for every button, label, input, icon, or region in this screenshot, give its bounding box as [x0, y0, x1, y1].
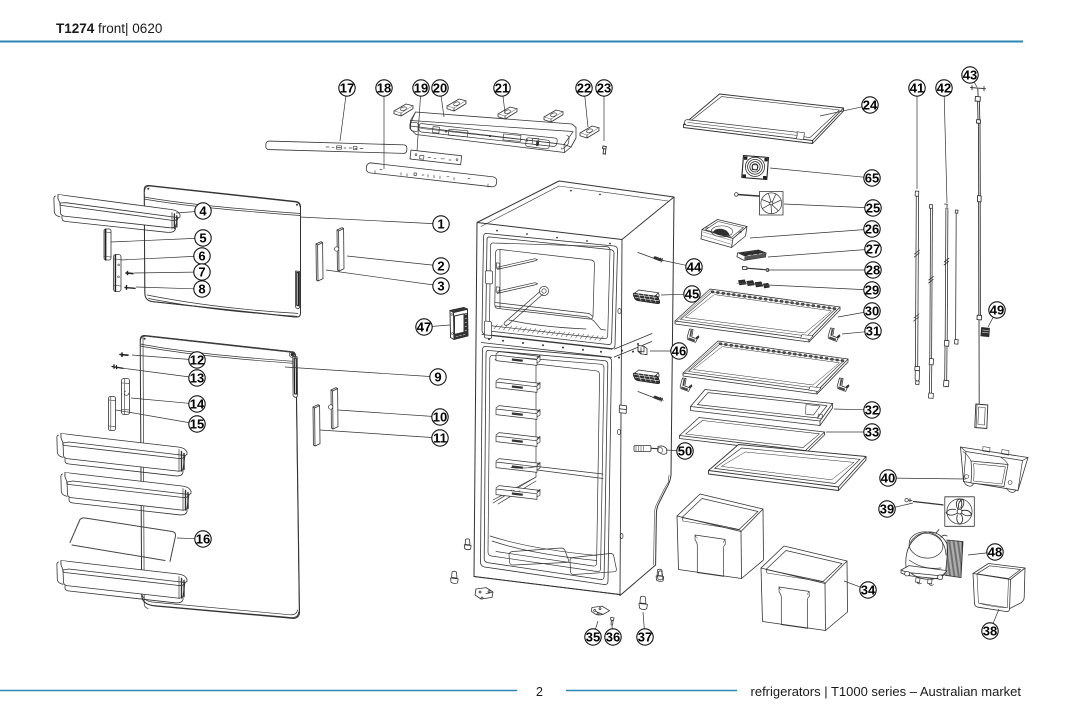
svg-text:38: 38 [983, 624, 997, 639]
svg-text:35: 35 [586, 630, 600, 645]
svg-text:47: 47 [417, 320, 431, 335]
svg-text:14: 14 [190, 397, 205, 412]
svg-text:31: 31 [866, 324, 880, 339]
svg-text:28: 28 [866, 263, 880, 278]
svg-text:T1274 front| 0620: T1274 front| 0620 [56, 21, 162, 36]
svg-text:40: 40 [881, 471, 895, 486]
svg-text:27: 27 [866, 242, 880, 257]
svg-text:32: 32 [865, 403, 879, 418]
svg-text:4: 4 [199, 204, 207, 219]
svg-text:6: 6 [198, 249, 205, 264]
svg-text:36: 36 [606, 630, 620, 645]
svg-text:1: 1 [437, 217, 444, 232]
svg-text:20: 20 [433, 81, 447, 96]
svg-text:8: 8 [198, 282, 205, 297]
svg-text:39: 39 [880, 502, 894, 517]
svg-text:34: 34 [861, 583, 876, 598]
svg-text:22: 22 [577, 81, 591, 96]
svg-text:42: 42 [937, 81, 951, 96]
svg-text:19: 19 [414, 81, 428, 96]
svg-text:41: 41 [910, 81, 924, 96]
svg-text:33: 33 [865, 425, 879, 440]
svg-text:65: 65 [865, 171, 879, 186]
svg-text:2: 2 [536, 685, 543, 699]
svg-text:16: 16 [196, 532, 210, 547]
svg-text:10: 10 [433, 410, 447, 425]
svg-text:5: 5 [199, 231, 206, 246]
svg-text:21: 21 [495, 81, 509, 96]
svg-text:37: 37 [638, 630, 652, 645]
svg-text:23: 23 [597, 81, 611, 96]
svg-text:50: 50 [678, 444, 692, 459]
svg-text:9: 9 [434, 370, 441, 385]
svg-text:12: 12 [190, 353, 204, 368]
svg-text:7: 7 [198, 265, 205, 280]
svg-text:43: 43 [963, 68, 977, 83]
svg-text:44: 44 [687, 260, 702, 275]
svg-text:refrigerators | T1000 series –: refrigerators | T1000 series – Australia… [751, 684, 1022, 699]
svg-text:48: 48 [988, 545, 1002, 560]
svg-text:11: 11 [433, 431, 447, 446]
svg-text:24: 24 [863, 98, 878, 113]
svg-text:29: 29 [865, 283, 879, 298]
svg-text:46: 46 [672, 344, 686, 359]
svg-text:49: 49 [990, 303, 1004, 318]
svg-text:26: 26 [865, 222, 879, 237]
svg-text:2: 2 [437, 259, 444, 274]
svg-text:18: 18 [377, 81, 391, 96]
svg-text:17: 17 [340, 81, 354, 96]
svg-text:15: 15 [190, 417, 204, 432]
svg-text:30: 30 [865, 304, 879, 319]
svg-text:3: 3 [437, 279, 444, 294]
svg-text:25: 25 [866, 201, 880, 216]
svg-text:45: 45 [685, 287, 699, 302]
svg-text:13: 13 [190, 371, 204, 386]
